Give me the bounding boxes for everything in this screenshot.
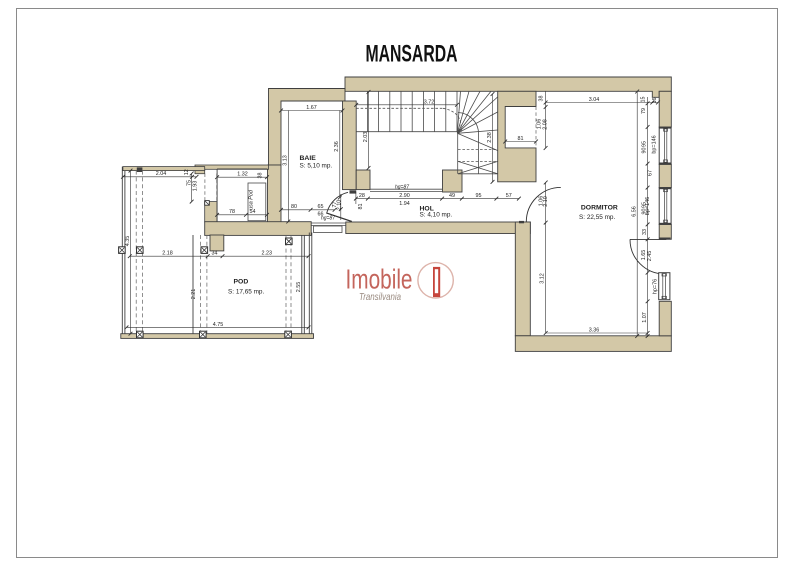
- svg-text:2.10: 2.10: [543, 196, 549, 207]
- svg-text:81: 81: [358, 204, 364, 210]
- svg-text:2.03: 2.03: [363, 132, 369, 143]
- svg-text:Transilvania: Transilvania: [359, 291, 401, 303]
- svg-text:2.18: 2.18: [162, 250, 173, 256]
- svg-text:hp=76: hp=76: [653, 279, 659, 294]
- svg-text:S: 4,10 mp.: S: 4,10 mp.: [420, 212, 453, 219]
- svg-text:57: 57: [506, 193, 512, 199]
- svg-text:16: 16: [652, 98, 658, 104]
- svg-text:4.35: 4.35: [125, 236, 131, 247]
- svg-text:3.36: 3.36: [589, 327, 600, 333]
- svg-text:DORMITOR: DORMITOR: [581, 205, 618, 212]
- svg-text:2.55: 2.55: [296, 282, 302, 293]
- svg-text:3.12: 3.12: [540, 273, 546, 284]
- svg-text:15: 15: [641, 97, 647, 103]
- svg-text:79: 79: [641, 108, 647, 114]
- svg-text:bp=146: bp=146: [652, 135, 658, 153]
- svg-text:hg=87: hg=87: [321, 216, 335, 222]
- svg-text:2.08: 2.08: [542, 119, 548, 130]
- svg-text:6.56: 6.56: [632, 206, 638, 217]
- svg-text:2.23: 2.23: [262, 250, 273, 256]
- svg-text:2.90: 2.90: [399, 193, 410, 199]
- svg-text:80: 80: [291, 204, 297, 210]
- svg-text:1.32: 1.32: [237, 172, 248, 178]
- svg-text:38: 38: [538, 96, 544, 102]
- svg-text:2.38: 2.38: [487, 132, 493, 143]
- svg-text:3.72: 3.72: [424, 99, 435, 105]
- svg-text:28: 28: [359, 193, 365, 199]
- svg-text:2.36: 2.36: [334, 141, 340, 152]
- svg-text:54: 54: [250, 209, 256, 215]
- svg-text:2.10: 2.10: [337, 200, 343, 211]
- svg-text:78: 78: [229, 209, 235, 215]
- svg-text:POD: POD: [234, 279, 249, 286]
- svg-text:67: 67: [648, 170, 654, 176]
- svg-text:2.45: 2.45: [647, 251, 653, 262]
- svg-text:38: 38: [258, 173, 264, 179]
- svg-text:34: 34: [212, 250, 218, 256]
- svg-text:hg=87: hg=87: [395, 184, 409, 190]
- svg-text:90: 90: [641, 148, 647, 154]
- svg-text:S: 22,55 mp.: S: 22,55 mp.: [579, 214, 615, 221]
- svg-text:4.75: 4.75: [213, 322, 224, 328]
- svg-text:Imobile: Imobile: [346, 264, 413, 295]
- svg-text:2.21: 2.21: [191, 289, 197, 300]
- svg-text:2.04: 2.04: [156, 171, 167, 177]
- svg-text:S: 17,65 mp.: S: 17,65 mp.: [228, 289, 264, 296]
- svg-text:3.04: 3.04: [589, 97, 600, 103]
- svg-text:33: 33: [642, 229, 648, 235]
- svg-text:1.94: 1.94: [399, 201, 410, 207]
- svg-text:49: 49: [449, 193, 455, 199]
- svg-text:95: 95: [476, 193, 482, 199]
- svg-text:95: 95: [641, 141, 647, 147]
- svg-text:bp=146: bp=146: [645, 197, 651, 215]
- svg-text:3.13: 3.13: [283, 155, 289, 166]
- svg-text:1.07: 1.07: [642, 312, 648, 323]
- svg-text:12: 12: [184, 169, 190, 175]
- svg-text:MANSARDA: MANSARDA: [366, 41, 458, 68]
- svg-text:BAIE: BAIE: [300, 155, 317, 162]
- svg-text:1.67: 1.67: [306, 105, 317, 111]
- svg-text:S: 5,10 mp.: S: 5,10 mp.: [300, 163, 333, 170]
- svg-text:1.93: 1.93: [192, 181, 198, 192]
- svg-text:65: 65: [318, 204, 324, 210]
- svg-text:usa Pod: usa Pod: [249, 189, 255, 210]
- svg-text:81: 81: [518, 136, 524, 142]
